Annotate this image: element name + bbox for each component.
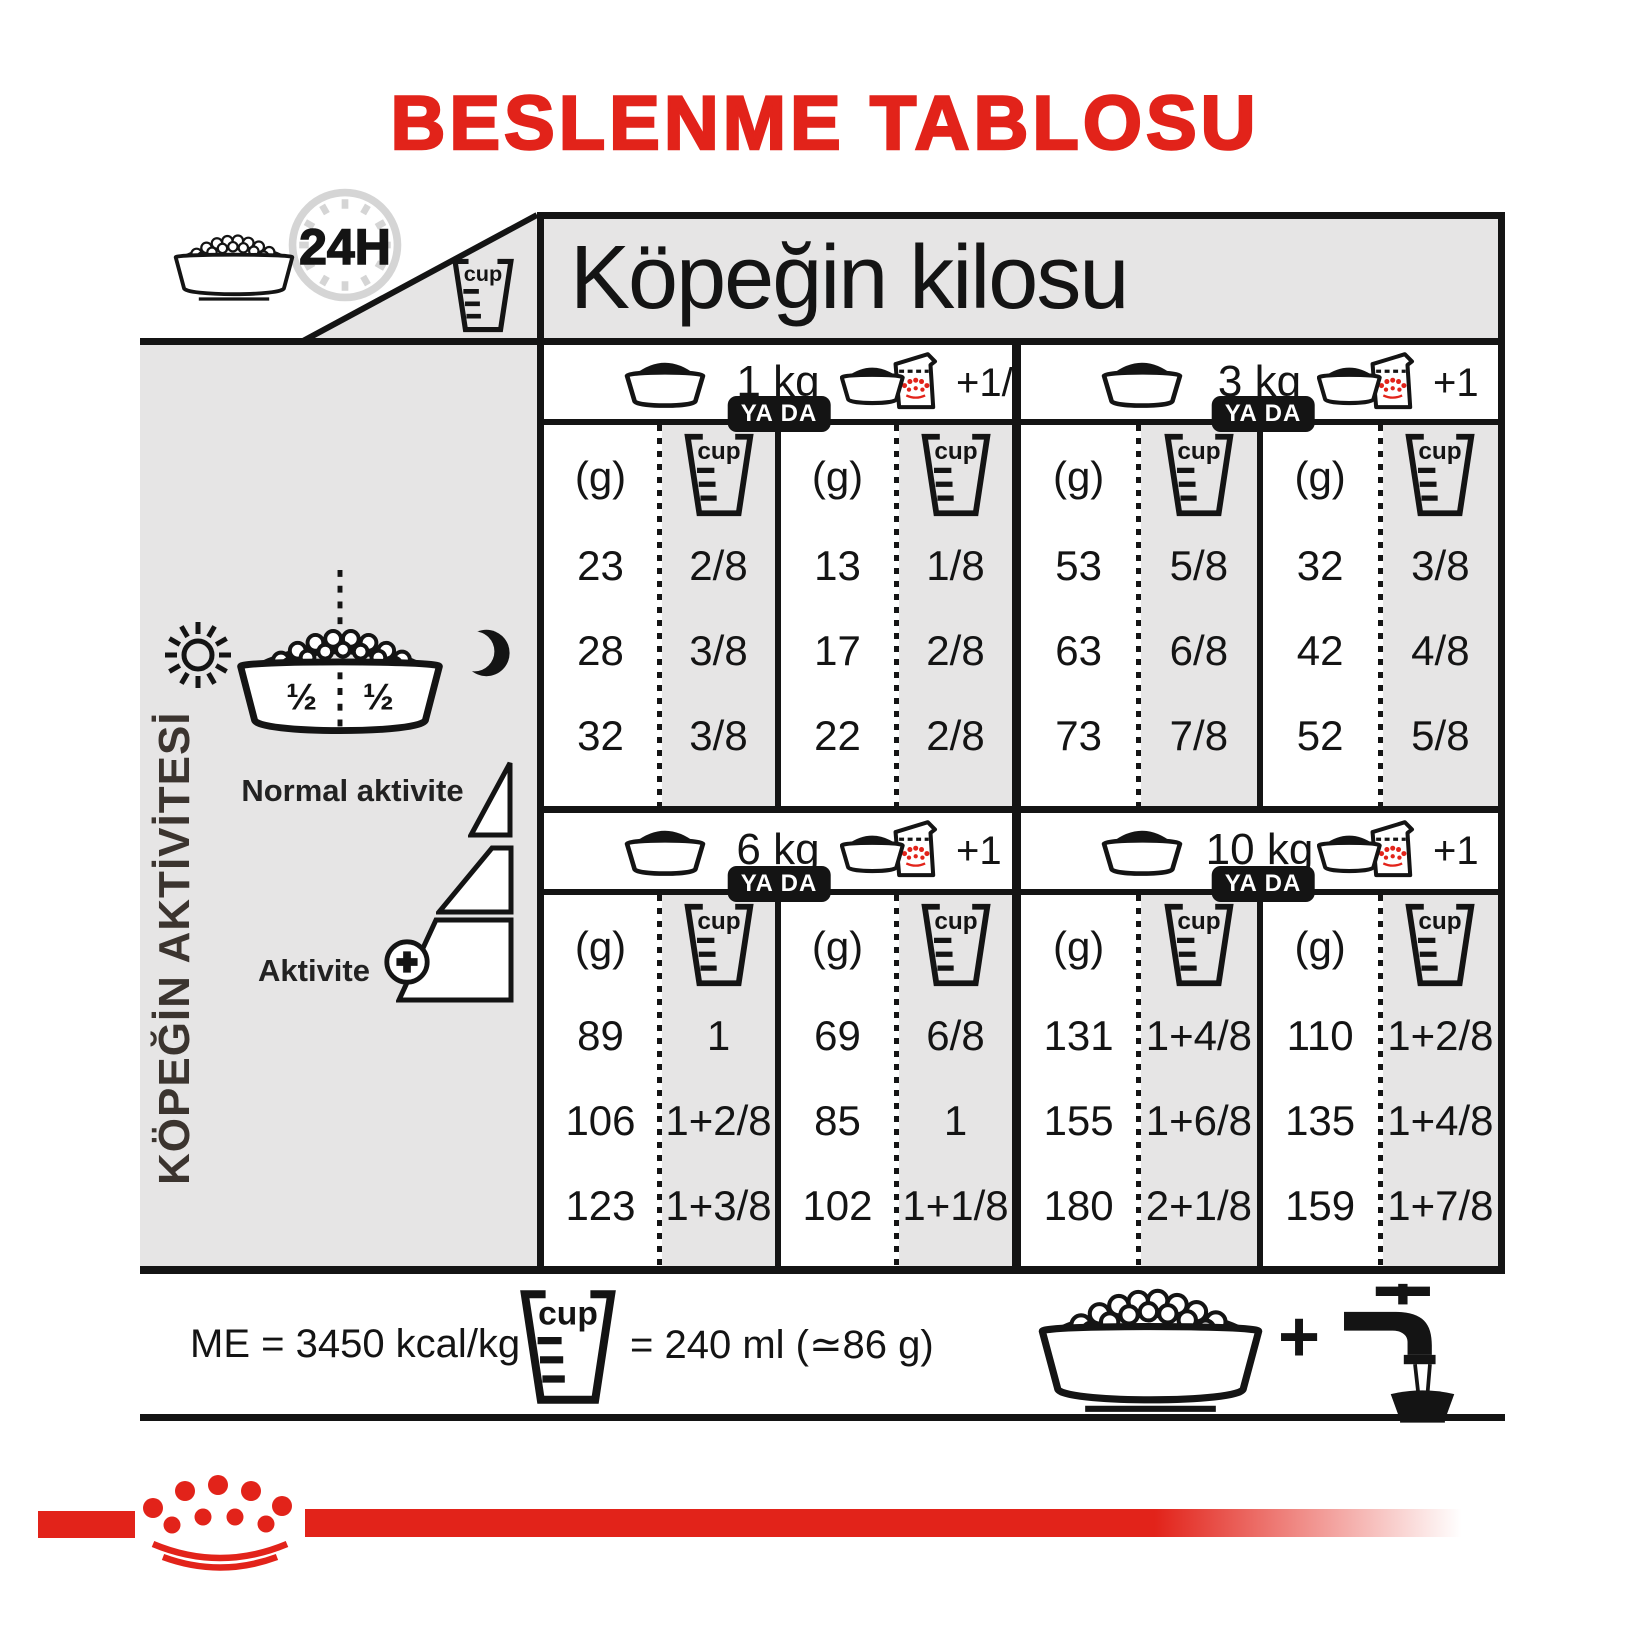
feeding-value: 6/8 (926, 993, 984, 1078)
feeding-value: 4/8 (1411, 608, 1469, 693)
data-cell-10kg: (g) 131 155 180 cup 1+4/8 1+6/8 2+1/8 (g… (1021, 895, 1505, 1274)
feeding-value: 155 (1044, 1078, 1114, 1163)
dry-subtable: (g) 89 106 123 cup 1 1+2/8 1+3/8 (544, 895, 775, 1266)
cup-icon: cup (921, 431, 991, 519)
feeding-value: 1+4/8 (1387, 1078, 1493, 1163)
cup-icon: cup (452, 256, 514, 335)
wet-add-label: +1 (1433, 829, 1479, 874)
cup-label: cup (1177, 908, 1220, 935)
feeding-value: 53 (1055, 523, 1102, 608)
feeding-value: 1+4/8 (1146, 993, 1252, 1078)
grams-label: (g) (544, 923, 657, 971)
or-tab: YA DA (1212, 866, 1315, 902)
feeding-value: 17 (814, 608, 861, 693)
or-tab: YA DA (728, 396, 831, 432)
feeding-value: 2/8 (926, 693, 984, 778)
feeding-value: 102 (802, 1163, 872, 1248)
cup-label: cup (1419, 438, 1462, 465)
feeding-value: 1+2/8 (665, 1078, 771, 1163)
divider-line (140, 1414, 1505, 1421)
mixed-subtable: (g) 69 85 102 cup 6/8 1 1+1/8 (781, 895, 1012, 1266)
24h-label: 24H (283, 218, 407, 276)
feeding-value: 73 (1055, 693, 1102, 778)
feeding-value: 1+2/8 (1387, 993, 1493, 1078)
feeding-value: 123 (565, 1163, 635, 1248)
wet-food-pouch-icon (840, 817, 952, 883)
cup-icon: cup (684, 901, 754, 989)
feeding-value: 89 (577, 993, 624, 1078)
me-energy-label: ME = 3450 kcal/kg (190, 1322, 520, 1367)
activity-axis-label: KÖPEĞİN AKTİVİTESİ (150, 645, 200, 1185)
feeding-value: 3/8 (689, 693, 747, 778)
activity-sidebar: KÖPEĞİN AKTİVİTESİ (140, 338, 537, 1274)
wet-add-label: +1 (956, 829, 1002, 874)
water-tap-icon (1340, 1282, 1462, 1424)
half-left-label: ½ (286, 676, 317, 718)
cup-label: cup (1419, 908, 1462, 935)
cup-label: cup (1177, 438, 1220, 465)
grams-label: (g) (781, 453, 894, 501)
feeding-value: 1 (944, 1078, 967, 1163)
feeding-value: 7/8 (1170, 693, 1228, 778)
plus-sign: + (1278, 1296, 1320, 1378)
feeding-value: 1+1/8 (902, 1163, 1008, 1248)
feeding-value: 32 (577, 693, 624, 778)
feeding-value: 159 (1285, 1163, 1355, 1248)
page-title: BESLENME TABLOSU (0, 80, 1650, 167)
cup-icon: cup (1405, 901, 1475, 989)
half-right-label: ½ (363, 676, 394, 718)
cup-label: cup (464, 261, 503, 286)
wet-add-label: +1 (1433, 361, 1479, 406)
feeding-value: 1 (707, 993, 730, 1078)
feeding-value: 63 (1055, 608, 1102, 693)
data-cell-1kg: (g) 23 28 32 cup 2/8 3/8 3/8 (g) 13 17 2… (537, 425, 1021, 813)
cup-equivalence-label: = 240 ml (≃86 g) (630, 1322, 934, 1368)
feeding-value: 2/8 (926, 608, 984, 693)
feeding-value: 1+6/8 (1146, 1078, 1252, 1163)
activity-triangle-small (468, 760, 514, 838)
feeding-value: 135 (1285, 1078, 1355, 1163)
cup-icon: cup (1164, 901, 1234, 989)
kibble-bowl-icon (1028, 1280, 1273, 1415)
feeding-value: 23 (577, 523, 624, 608)
feeding-value: 1+3/8 (665, 1163, 771, 1248)
or-tab: YA DA (1212, 396, 1315, 432)
cup-icon: cup (921, 901, 991, 989)
cup-label: cup (697, 908, 740, 935)
kibble-bowl-icon (168, 228, 300, 304)
wet-food-pouch-icon (840, 349, 952, 415)
feeding-value: 69 (814, 993, 861, 1078)
feeding-value: 2+1/8 (1146, 1163, 1252, 1248)
feeding-value: 32 (1297, 523, 1344, 608)
half-split-bowl-icon: ½ ½ (226, 570, 454, 752)
brand-stripe-left (38, 1511, 135, 1538)
brand-crown-icon (135, 1468, 305, 1573)
dry-subtable: (g) 23 28 32 cup 2/8 3/8 3/8 (544, 425, 775, 806)
normal-activity-label: Normal aktivite (235, 773, 470, 809)
feeding-value: 42 (1297, 608, 1344, 693)
or-tab: YA DA (728, 866, 831, 902)
feeding-value: 180 (1044, 1163, 1114, 1248)
data-cell-6kg: (g) 89 106 123 cup 1 1+2/8 1+3/8 (g) 69 … (537, 895, 1021, 1274)
mixed-subtable: (g) 110 135 159 cup 1+2/8 1+4/8 1+7/8 (1263, 895, 1499, 1266)
moon-icon (456, 620, 512, 686)
feeding-value: 131 (1044, 993, 1114, 1078)
feeding-value: 52 (1297, 693, 1344, 778)
cup-icon: cup (520, 1286, 616, 1408)
feeding-table-page: BESLENME TABLOSU 24H cup Köpeğin kilosu … (0, 0, 1650, 1650)
dry-subtable: (g) 131 155 180 cup 1+4/8 1+6/8 2+1/8 (1021, 895, 1257, 1266)
grams-label: (g) (544, 453, 657, 501)
cup-label: cup (934, 438, 977, 465)
feeding-value: 2/8 (689, 523, 747, 608)
feeding-value: 85 (814, 1078, 861, 1163)
wet-food-pouch-icon (1317, 349, 1429, 415)
feeding-value: 13 (814, 523, 861, 608)
feeding-value: 1+7/8 (1387, 1163, 1493, 1248)
weight-header: Köpeğin kilosu (537, 212, 1505, 345)
feeding-value: 3/8 (1411, 523, 1469, 608)
data-cell-3kg: (g) 53 63 73 cup 5/8 6/8 7/8 (g) 32 42 5… (1021, 425, 1505, 813)
feeding-value: 5/8 (1411, 693, 1469, 778)
grams-label: (g) (1263, 923, 1378, 971)
feeding-value: 110 (1287, 993, 1354, 1078)
feeding-value: 1/8 (926, 523, 984, 608)
wet-food-pouch-icon (1317, 817, 1429, 883)
grams-label: (g) (1021, 923, 1136, 971)
feeding-value: 6/8 (1170, 608, 1228, 693)
feeding-value: 28 (577, 608, 624, 693)
grams-label: (g) (781, 923, 894, 971)
cup-label: cup (538, 1296, 598, 1333)
cup-icon: cup (684, 431, 754, 519)
feeding-value: 3/8 (689, 608, 747, 693)
mixed-subtable: (g) 13 17 22 cup 1/8 2/8 2/8 (781, 425, 1012, 806)
feeding-value: 106 (565, 1078, 635, 1163)
dry-subtable: (g) 53 63 73 cup 5/8 6/8 7/8 (1021, 425, 1257, 806)
mixed-subtable: (g) 32 42 52 cup 3/8 4/8 5/8 (1263, 425, 1499, 806)
cup-label: cup (697, 438, 740, 465)
activity-triangle-mid (436, 845, 514, 915)
feeding-value: 22 (814, 693, 861, 778)
grams-label: (g) (1021, 453, 1136, 501)
cup-label: cup (934, 908, 977, 935)
feeding-value: 5/8 (1170, 523, 1228, 608)
cup-icon: cup (1164, 431, 1234, 519)
cup-icon: cup (1405, 431, 1475, 519)
brand-stripe-right (305, 1509, 1485, 1537)
grams-label: (g) (1263, 453, 1378, 501)
activity-label: Aktivite (258, 953, 418, 989)
